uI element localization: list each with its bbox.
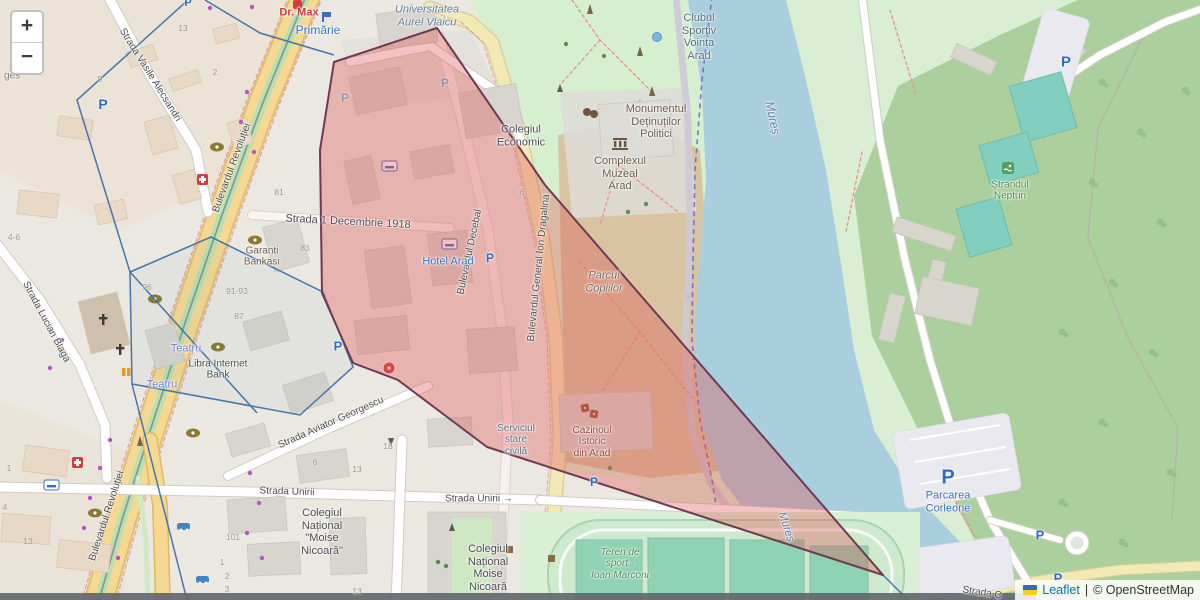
ukraine-flag-icon [1023, 585, 1037, 595]
zoom-control: + − [10, 10, 44, 75]
zoom-in-button[interactable]: + [12, 12, 42, 43]
osm-attribution[interactable]: © OpenStreetMap [1093, 583, 1194, 597]
swimmer-icon [1002, 162, 1014, 174]
leaflet-map[interactable]: Strada Vasile Alecsandri Bulevardul Revo… [0, 0, 1200, 600]
map-canvas[interactable] [0, 0, 1200, 600]
attribution-separator: | [1085, 583, 1088, 597]
zoom-out-button[interactable]: − [12, 43, 42, 73]
leaflet-link[interactable]: Leaflet [1042, 583, 1080, 597]
bottom-building-strip [0, 593, 1036, 600]
museum-icon [612, 138, 628, 150]
attribution-bar: Leaflet | © OpenStreetMap [1015, 580, 1200, 600]
fountain-icon [653, 33, 662, 42]
